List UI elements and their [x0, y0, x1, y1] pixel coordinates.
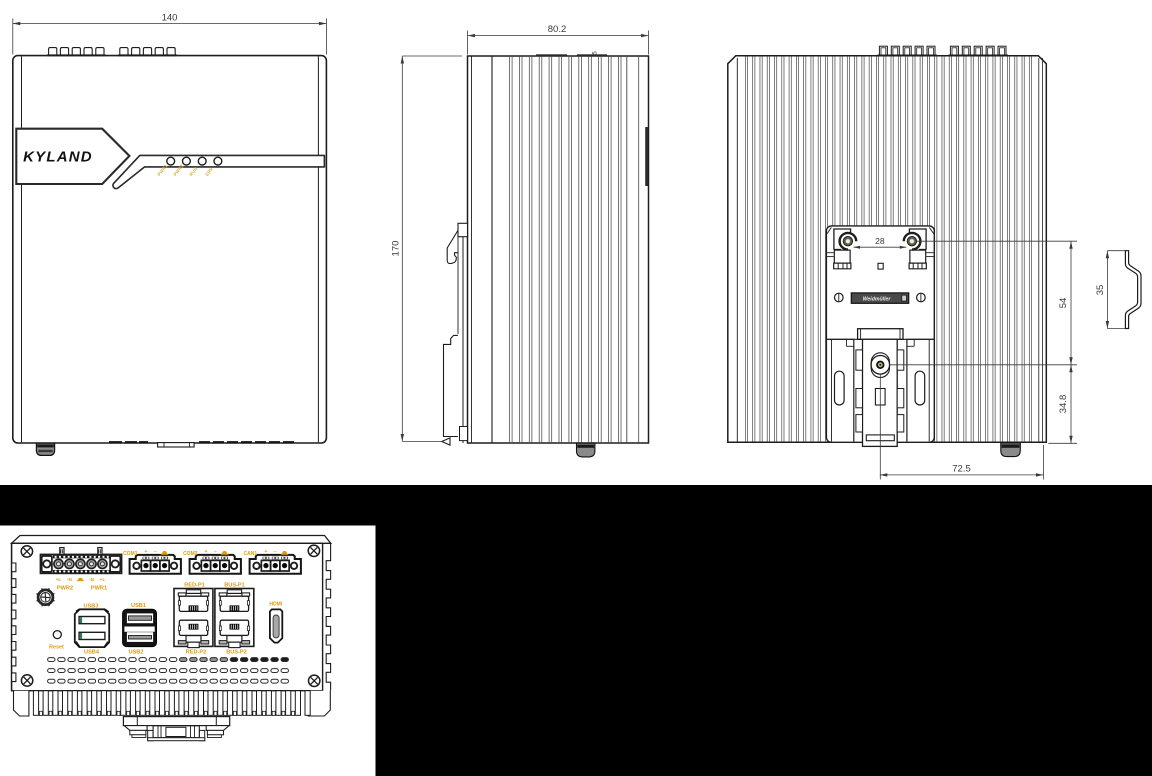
- svg-text:BUS-P2: BUS-P2: [226, 649, 247, 655]
- svg-text:+: +: [204, 549, 207, 555]
- svg-text:USB1: USB1: [131, 603, 146, 609]
- svg-text:+: +: [264, 549, 267, 555]
- svg-text:RED-P1: RED-P1: [184, 582, 205, 588]
- svg-text:–: –: [154, 549, 157, 555]
- svg-text:CAN1: CAN1: [243, 551, 257, 557]
- svg-text:USB3: USB3: [84, 603, 99, 609]
- svg-text:USB4: USB4: [84, 649, 100, 655]
- svg-text:80.2: 80.2: [548, 24, 567, 35]
- svg-text:-N: -N: [89, 577, 95, 582]
- svg-text:PWR2: PWR2: [57, 586, 73, 592]
- svg-text:28: 28: [875, 236, 885, 246]
- svg-text:COM1: COM1: [123, 551, 138, 557]
- svg-text:KYLAND: KYLAND: [23, 149, 93, 166]
- svg-text:PWR1: PWR1: [91, 586, 107, 592]
- svg-text:–: –: [274, 549, 277, 555]
- svg-text:Weidmüller: Weidmüller: [863, 297, 892, 303]
- svg-text:72.5: 72.5: [952, 463, 971, 474]
- svg-text:–: –: [214, 549, 217, 555]
- svg-text:RED-P2: RED-P2: [186, 649, 207, 655]
- svg-text:USB2: USB2: [129, 649, 144, 655]
- svg-text:+L: +L: [100, 577, 106, 582]
- svg-text:170: 170: [391, 241, 402, 257]
- svg-text:COM2: COM2: [183, 551, 198, 557]
- svg-text:54: 54: [1058, 298, 1069, 309]
- svg-text:BUS-P1: BUS-P1: [224, 582, 245, 588]
- svg-text:+L: +L: [56, 577, 62, 582]
- svg-text:-N: -N: [67, 577, 73, 582]
- svg-text:+: +: [144, 549, 147, 555]
- svg-text:Reset: Reset: [49, 644, 64, 650]
- svg-text:35: 35: [1095, 285, 1106, 296]
- svg-text:140: 140: [162, 13, 178, 24]
- svg-text:34.8: 34.8: [1058, 395, 1069, 414]
- svg-text:HDMI: HDMI: [269, 602, 282, 608]
